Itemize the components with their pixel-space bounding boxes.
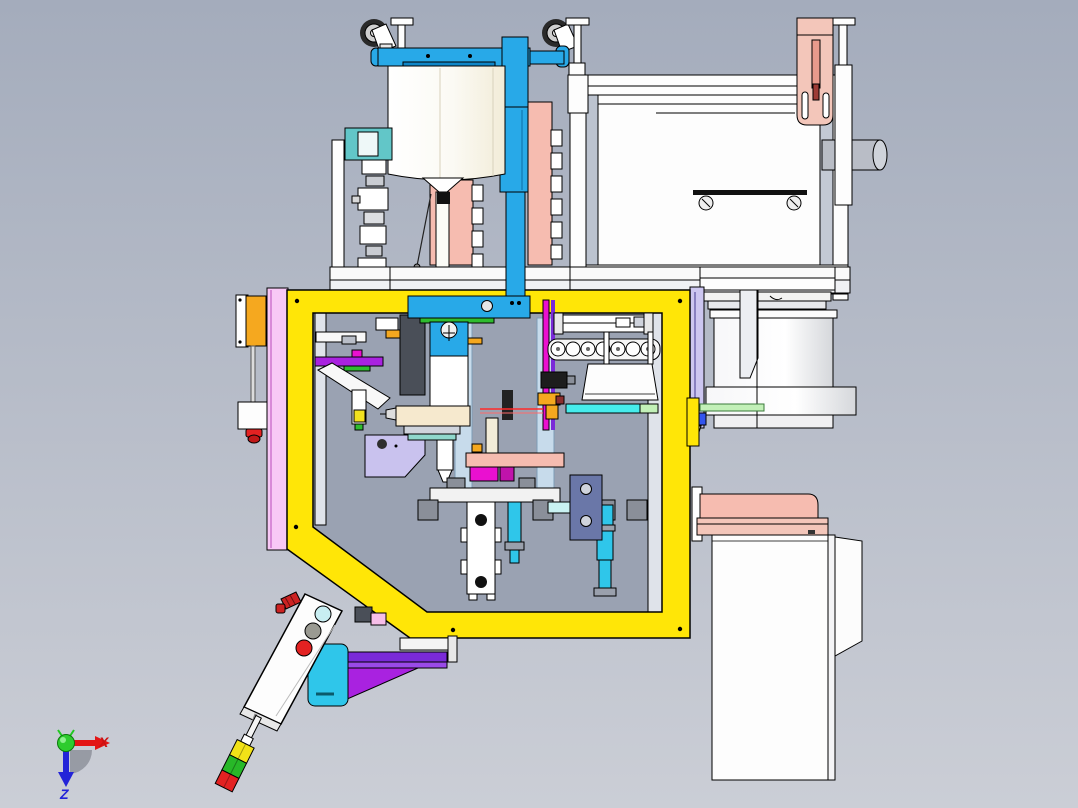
terminal-clamps-right: [551, 130, 562, 259]
dispenser-valve-stack[interactable]: [332, 128, 392, 289]
pink-hanger-bracket: [797, 18, 833, 125]
amber-sensor: [246, 296, 266, 346]
pendant-button-gray[interactable]: [305, 623, 321, 639]
terminal-clamps-left: [472, 185, 483, 268]
gusset-bracket: [345, 668, 418, 700]
parts-tray: [582, 364, 658, 400]
purple-rail: [315, 357, 383, 366]
gripper-block: [396, 406, 470, 426]
x-axis-label: X: [98, 734, 110, 750]
electrical-enclosure[interactable]: [570, 18, 887, 300]
photo-sensor-assembly[interactable]: [236, 295, 266, 414]
cad-viewport[interactable]: X Z: [0, 0, 1078, 808]
control-cabinet[interactable]: [712, 535, 862, 780]
triad-shadow: [70, 750, 92, 774]
stop-valve-box[interactable]: [238, 402, 267, 443]
signal-tower[interactable]: [215, 713, 267, 792]
x-axis: X: [70, 734, 110, 750]
model-canvas[interactable]: X Z: [0, 0, 1078, 808]
column-block: [502, 37, 528, 107]
mini-motor: [541, 372, 567, 388]
side-shield-plate[interactable]: [267, 288, 288, 550]
pink-slide-plate: [466, 453, 564, 467]
mount-beam-pink[interactable]: [692, 487, 828, 541]
drum-strap: [740, 290, 758, 378]
drain-tube: [417, 194, 431, 266]
pendant-button-cyan[interactable]: [315, 606, 331, 622]
pneumatic-cylinder: [461, 502, 501, 600]
side-cylinder: [822, 140, 887, 170]
leveling-foot-right: [832, 18, 855, 205]
z-axis-label: Z: [59, 786, 69, 802]
cabinet-side-panel: [835, 537, 862, 656]
green-guide-strip: [700, 404, 764, 411]
conveyor-strip: [566, 404, 642, 413]
pendant-button-red[interactable]: [296, 640, 312, 656]
axis-triad: X Z: [58, 730, 111, 802]
y-axis-origin: [58, 730, 75, 752]
